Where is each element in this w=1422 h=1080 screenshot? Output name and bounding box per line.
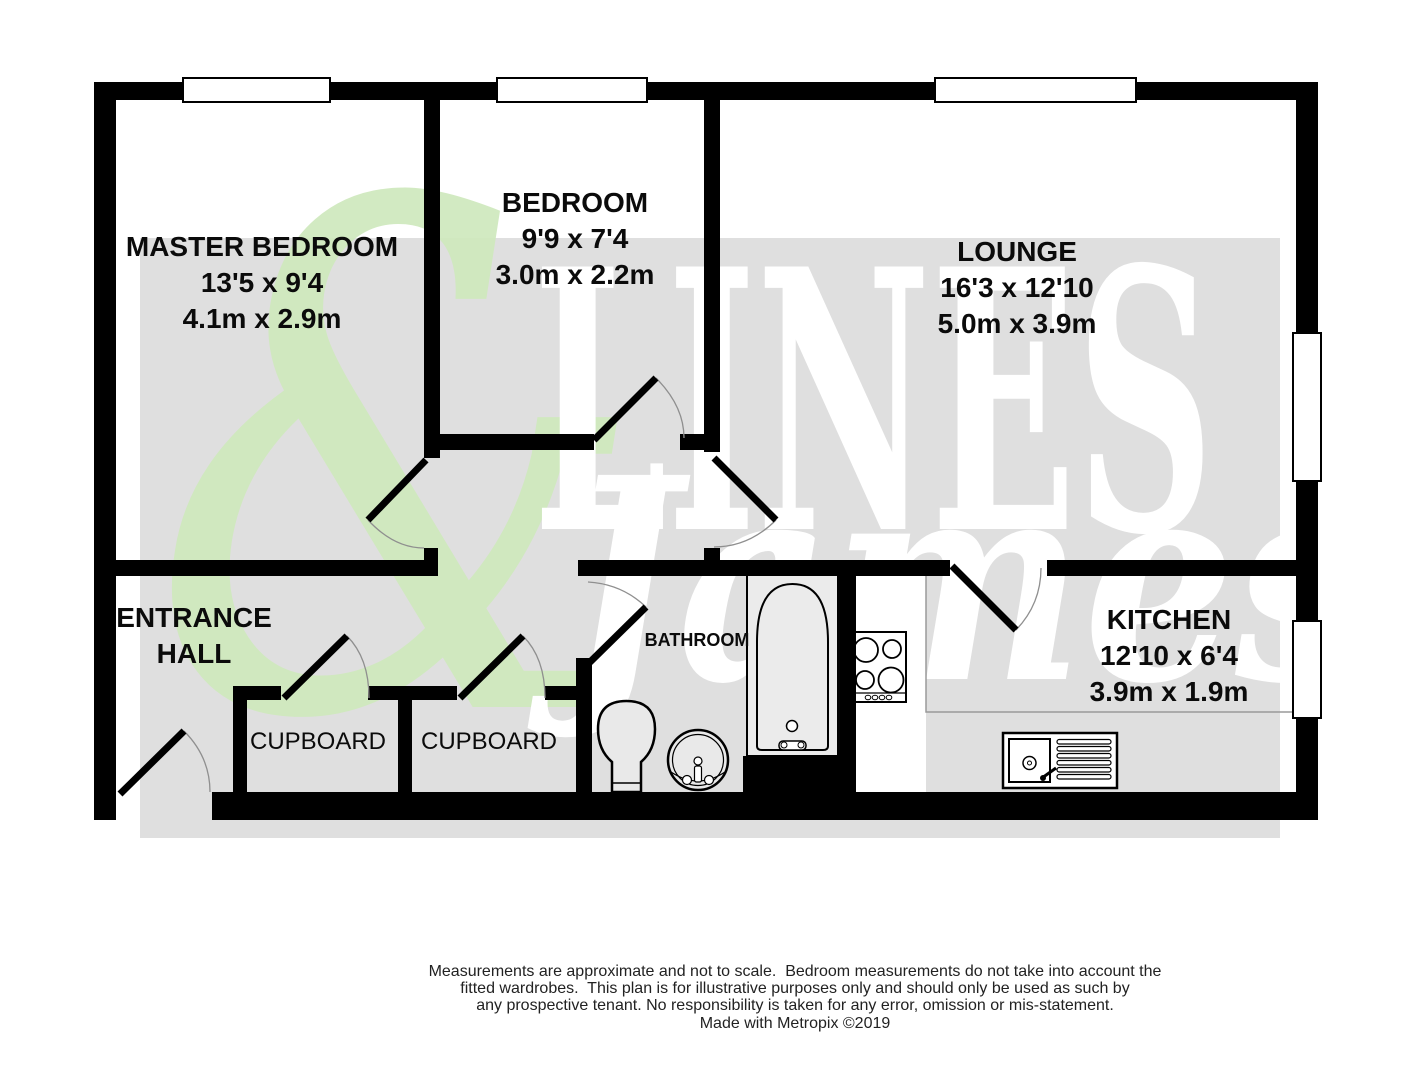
lounge-door — [714, 458, 776, 520]
bedroom-name: BEDROOM — [496, 185, 655, 221]
master-bedroom-door — [368, 460, 426, 520]
bedroom-door — [594, 378, 656, 440]
toilet — [598, 701, 655, 792]
cupboard2-door-arc — [523, 636, 545, 698]
disclaimer-line-2: fitted wardrobes. This plan is for illus… — [429, 980, 1162, 997]
wall-bathroom-top — [578, 560, 950, 576]
lounge-door-arc — [714, 520, 776, 547]
cupboard2-door — [460, 636, 523, 698]
master-bedroom-size-imperial: 13'5 x 9'4 — [126, 265, 398, 301]
kitchen-size-imperial: 12'10 x 6'4 — [1090, 638, 1249, 674]
lounge-size-metric: 5.0m x 3.9m — [938, 306, 1097, 342]
master-bedroom-size-metric: 4.1m x 2.9m — [126, 301, 398, 337]
disclaimer-line-1: Measurements are approximate and not to … — [429, 963, 1162, 980]
entrance-hall-line2: HALL — [116, 636, 272, 672]
wall-exterior-bottom — [212, 792, 1318, 820]
disclaimer-line-4: Made with Metropix ©2019 — [429, 1015, 1162, 1032]
wall-hall-top — [116, 560, 438, 576]
disclaimer-text: Measurements are approximate and not to … — [429, 963, 1162, 1032]
bathroom-door-arc — [588, 582, 646, 607]
hob — [853, 632, 906, 702]
wall-master-door-stub — [424, 548, 438, 562]
bathroom-door — [588, 607, 646, 664]
cupboard-left-name: CUPBOARD — [250, 729, 386, 755]
bedroom-door-arc — [656, 378, 684, 438]
bedroom-size-metric: 3.0m x 2.2m — [496, 257, 655, 293]
wall-bathroom-left — [576, 658, 592, 792]
label-cupboard-left: CUPBOARD — [250, 729, 386, 755]
wall-cupboard-shared — [398, 686, 412, 792]
window-bedroom — [497, 78, 647, 102]
label-bedroom: BEDROOM 9'9 x 7'4 3.0m x 2.2m — [496, 185, 655, 293]
bath-tap — [787, 721, 798, 732]
window-lounge-right — [1293, 333, 1321, 481]
kitchen-size-metric: 3.9m x 1.9m — [1090, 674, 1249, 710]
wall-bedroom-bottom — [424, 434, 594, 450]
entrance-hall-line1: ENTRANCE — [116, 600, 272, 636]
label-entrance-hall: ENTRANCE HALL — [116, 600, 272, 672]
lounge-name: LOUNGE — [938, 234, 1097, 270]
kitchen-name: KITCHEN — [1090, 602, 1249, 638]
wall-cupboard2-top-right — [545, 686, 592, 700]
bedroom-size-imperial: 9'9 x 7'4 — [496, 221, 655, 257]
floorplan-image: & LINES James — [0, 0, 1422, 1080]
cupboard1-door-arc — [347, 636, 369, 698]
entrance-door — [120, 731, 184, 794]
wall-bath-surround — [743, 756, 843, 792]
label-lounge: LOUNGE 16'3 x 12'10 5.0m x 3.9m — [938, 234, 1097, 342]
bathroom-name: BATHROOM — [645, 630, 750, 650]
wall-master-bedroom-divider — [424, 100, 440, 458]
kitchen-door-arc — [1016, 568, 1041, 630]
kitchen-sink — [1003, 733, 1117, 788]
label-kitchen: KITCHEN 12'10 x 6'4 3.9m x 1.9m — [1090, 602, 1249, 710]
master-bedroom-door-arc — [368, 520, 424, 548]
disclaimer-line-3: any prospective tenant. No responsibilit… — [429, 997, 1162, 1014]
floor-plan-svg — [0, 0, 1422, 1080]
entrance-door-arc — [184, 731, 210, 792]
lounge-size-imperial: 16'3 x 12'10 — [938, 270, 1097, 306]
window-lounge-top — [935, 78, 1136, 102]
cupboard-right-name: CUPBOARD — [421, 729, 557, 755]
wall-exterior-left — [94, 82, 116, 820]
window-master-bedroom — [183, 78, 330, 102]
washbasin — [668, 730, 728, 790]
label-master-bedroom: MASTER BEDROOM 13'5 x 9'4 4.1m x 2.9m — [126, 229, 398, 337]
kitchen-door — [952, 566, 1016, 630]
bath — [747, 572, 838, 756]
wall-cupboard1-top-left — [233, 686, 281, 700]
wall-kitchen-top — [1047, 560, 1296, 576]
wall-lounge-divider — [704, 100, 720, 452]
wall-cupboard1-left — [233, 686, 247, 792]
cupboard1-door — [284, 636, 347, 698]
wall-cupboard-top-mid — [368, 686, 457, 700]
window-kitchen-right — [1293, 621, 1321, 718]
label-cupboard-right: CUPBOARD — [421, 729, 557, 755]
master-bedroom-name: MASTER BEDROOM — [126, 229, 398, 265]
label-bathroom: BATHROOM — [645, 630, 750, 650]
